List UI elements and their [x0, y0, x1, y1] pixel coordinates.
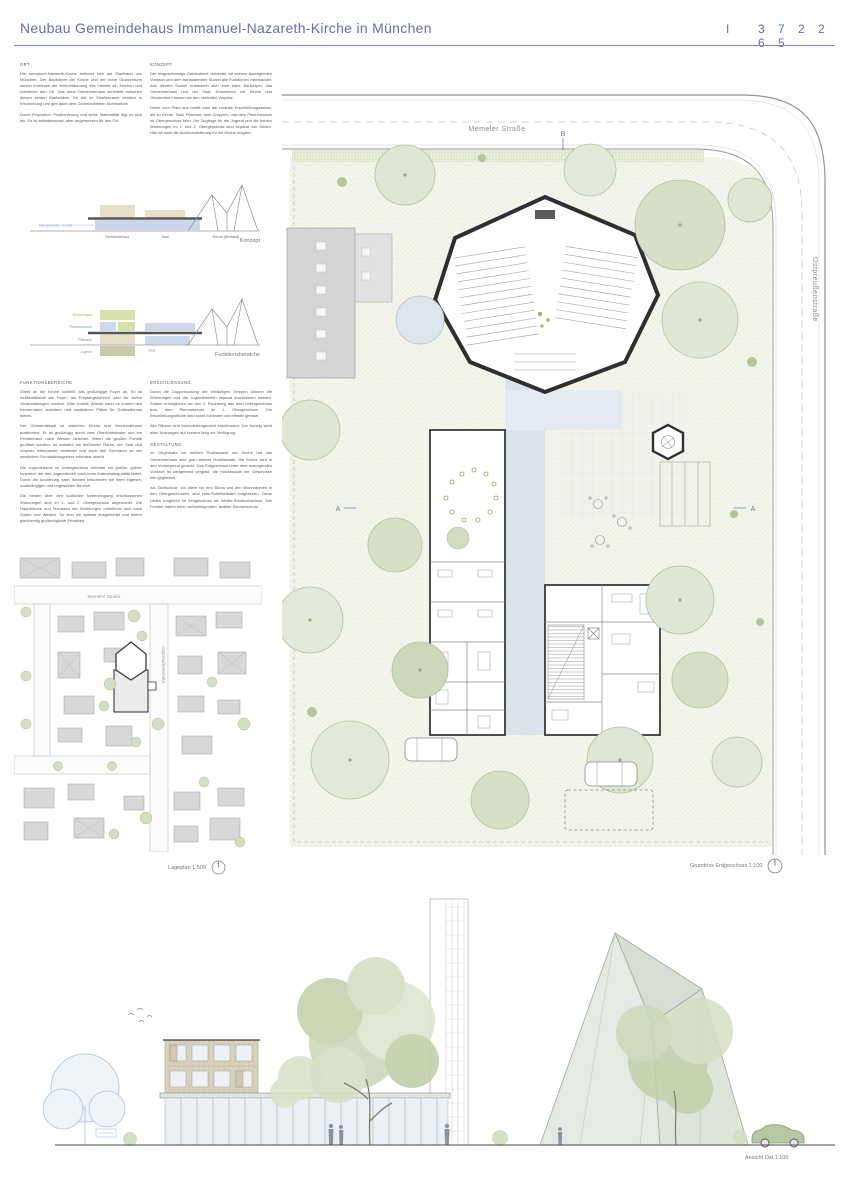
band-saal-upper	[145, 323, 195, 331]
caption-konzept: Konzept	[180, 238, 260, 244]
label-sockel: transparenter Sockel	[39, 224, 72, 228]
page-title: Neubau Gemeindehaus Immanuel-Nazareth-Ki…	[20, 20, 432, 36]
car	[752, 1125, 804, 1148]
foyer-floor	[505, 390, 622, 430]
paragraph: Der Gemeindesaal ist zwischen Kirche und…	[20, 423, 142, 460]
street-label-right: Ostpreußenstraße	[161, 646, 166, 684]
paragraph: Die Immanuel-Nazareth-Kirche befindet si…	[20, 71, 142, 108]
text-block-erschliessung-gestaltung: ERSCHLIESSUNG Durch die Doppelnutzung de…	[150, 380, 272, 514]
heading-konzept: KONZEPT	[150, 62, 272, 69]
label-saal: Saal	[161, 235, 168, 239]
paragraph: Alle Räume sind behindertengerecht ersch…	[150, 423, 272, 435]
caption-funktionsbereiche: Funktionsbereiche	[180, 352, 260, 358]
band-wohnungen	[100, 310, 135, 320]
caption-text: Funktionsbereiche	[215, 352, 260, 358]
heading-funktionsbereiche: FUNKTIONSBEREICHE	[20, 380, 142, 387]
header-separator: I	[726, 22, 729, 36]
bell-tower	[653, 425, 683, 459]
label-wohnungen: Wohnungen	[73, 313, 92, 317]
caption-text: Ansicht Ost 1:100	[745, 1155, 788, 1161]
tower-footprint	[148, 682, 156, 690]
street-label-right: Ostpreußenstraße	[811, 257, 818, 322]
label-gemeindehaus: Gemeindehaus	[105, 235, 130, 239]
gemeindehaus-west-wing	[430, 430, 505, 735]
birds	[128, 1008, 152, 1022]
big-tree	[297, 957, 439, 1103]
paragraph: Als Sichtschutz, vor allem vor den Büros…	[150, 485, 272, 510]
label-jugend: Jugend	[80, 350, 92, 354]
courtyard-tree	[447, 527, 469, 549]
street-label-memeler: Memeler Straße	[88, 594, 121, 599]
heading-ort: ORT	[20, 62, 142, 69]
north-arrow-icon	[767, 858, 783, 874]
svg-text:B: B	[561, 131, 566, 138]
label-plenumsraum: Plenumsraum	[70, 325, 92, 329]
paragraph: Direkt vom Platz aus betritt man die zen…	[150, 105, 272, 136]
text-block-funktionsbereiche: FUNKTIONSBEREICHE Direkt an die Kirche s…	[20, 380, 142, 528]
material-tag	[96, 1129, 116, 1137]
block-gemeindehaus	[100, 205, 135, 217]
band-saal	[145, 336, 190, 345]
ground-floor-plan: Memeler Straße Ostpreußenstraße B	[282, 62, 847, 855]
caption-text: Lageplan 1:500	[168, 865, 206, 871]
svg-text:A: A	[751, 506, 756, 513]
label-saal: Saal	[148, 349, 155, 353]
heading-gestaltung: GESTALTUNG	[150, 442, 272, 449]
east-elevation	[0, 893, 849, 1163]
block-saal	[145, 210, 185, 217]
sliding-shutter	[236, 1071, 243, 1087]
project-site	[114, 642, 156, 712]
north-arrow-icon	[211, 860, 226, 875]
caption-lageplan: Lageplan 1:500	[168, 860, 226, 875]
sliding-shutter	[170, 1045, 177, 1061]
heading-erschliessung: ERSCHLIESSUNG	[150, 380, 272, 387]
sockel-band	[95, 220, 200, 230]
band-plenum	[100, 322, 116, 331]
label-pfarramt: Pfarramt	[78, 338, 92, 342]
paragraph: Im Gegensatz zur weißen Putzfassade der …	[150, 450, 272, 481]
section-marker-b: B	[561, 131, 566, 150]
glazed-base	[165, 1098, 448, 1145]
altar	[535, 210, 555, 219]
blue-tree	[43, 1054, 125, 1145]
text-block-ort: ORT Die Immanuel-Nazareth-Kirche befinde…	[20, 62, 142, 128]
paragraph: Der eingeschossige Gebäudeteil verbindet…	[150, 71, 272, 102]
band-jugend	[100, 346, 135, 356]
hedge-strip	[292, 150, 704, 162]
presentation-board: Neubau Gemeindehaus Immanuel-Nazareth-Ki…	[0, 0, 849, 1200]
band-pfarramt	[100, 335, 135, 345]
paragraph: Die beiden über den südlichen Nebeneinga…	[20, 493, 142, 524]
svg-text:A: A	[336, 506, 341, 513]
paragraph: Durch die Doppelnutzung der einläufigen …	[150, 389, 272, 420]
text-block-konzept: KONZEPT Der eingeschossige Gebäudeteil v…	[150, 62, 272, 140]
caption-grundriss: Grundriss Erdgeschoss 1:100	[690, 858, 783, 874]
header-rule	[14, 45, 835, 46]
church-outline	[188, 299, 258, 345]
paragraph: Durch Proportion, Positionierung und sei…	[20, 112, 142, 124]
street-label-memeler: Memeler Straße	[468, 126, 525, 133]
band-plenum2	[118, 322, 135, 331]
paragraph: Die Jugendräume im Untergeschoss belicht…	[20, 465, 142, 490]
trees	[21, 607, 250, 847]
paragraph: Direkt an die Kirche schließt das großzü…	[20, 389, 142, 420]
site-plan-lageplan: Memeler Straße Ostpreußenstraße	[14, 556, 262, 852]
caption-ansicht: Ansicht Ost 1:100	[745, 1155, 788, 1161]
caption-text: Konzept	[240, 238, 260, 244]
caption-text: Grundriss Erdgeschoss 1:100	[690, 863, 762, 869]
diagram-konzept: transparenter Sockel Gemeindehaus Saal K…	[30, 183, 260, 245]
gemeindehaus-east-wing	[545, 585, 660, 735]
